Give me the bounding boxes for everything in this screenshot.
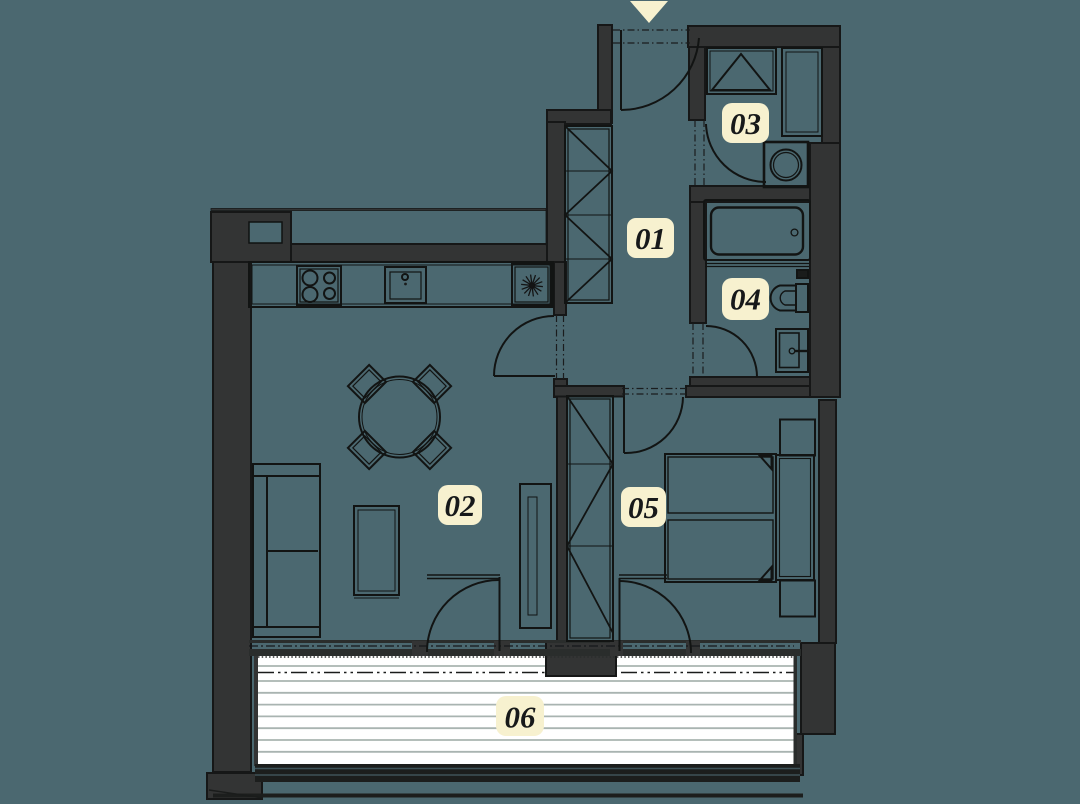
svg-text:06: 06 bbox=[505, 700, 537, 735]
svg-text:02: 02 bbox=[445, 488, 476, 523]
svg-text:01: 01 bbox=[635, 221, 666, 256]
svg-text:04: 04 bbox=[730, 282, 761, 317]
svg-text:03: 03 bbox=[730, 106, 761, 141]
svg-text:05: 05 bbox=[628, 490, 659, 525]
